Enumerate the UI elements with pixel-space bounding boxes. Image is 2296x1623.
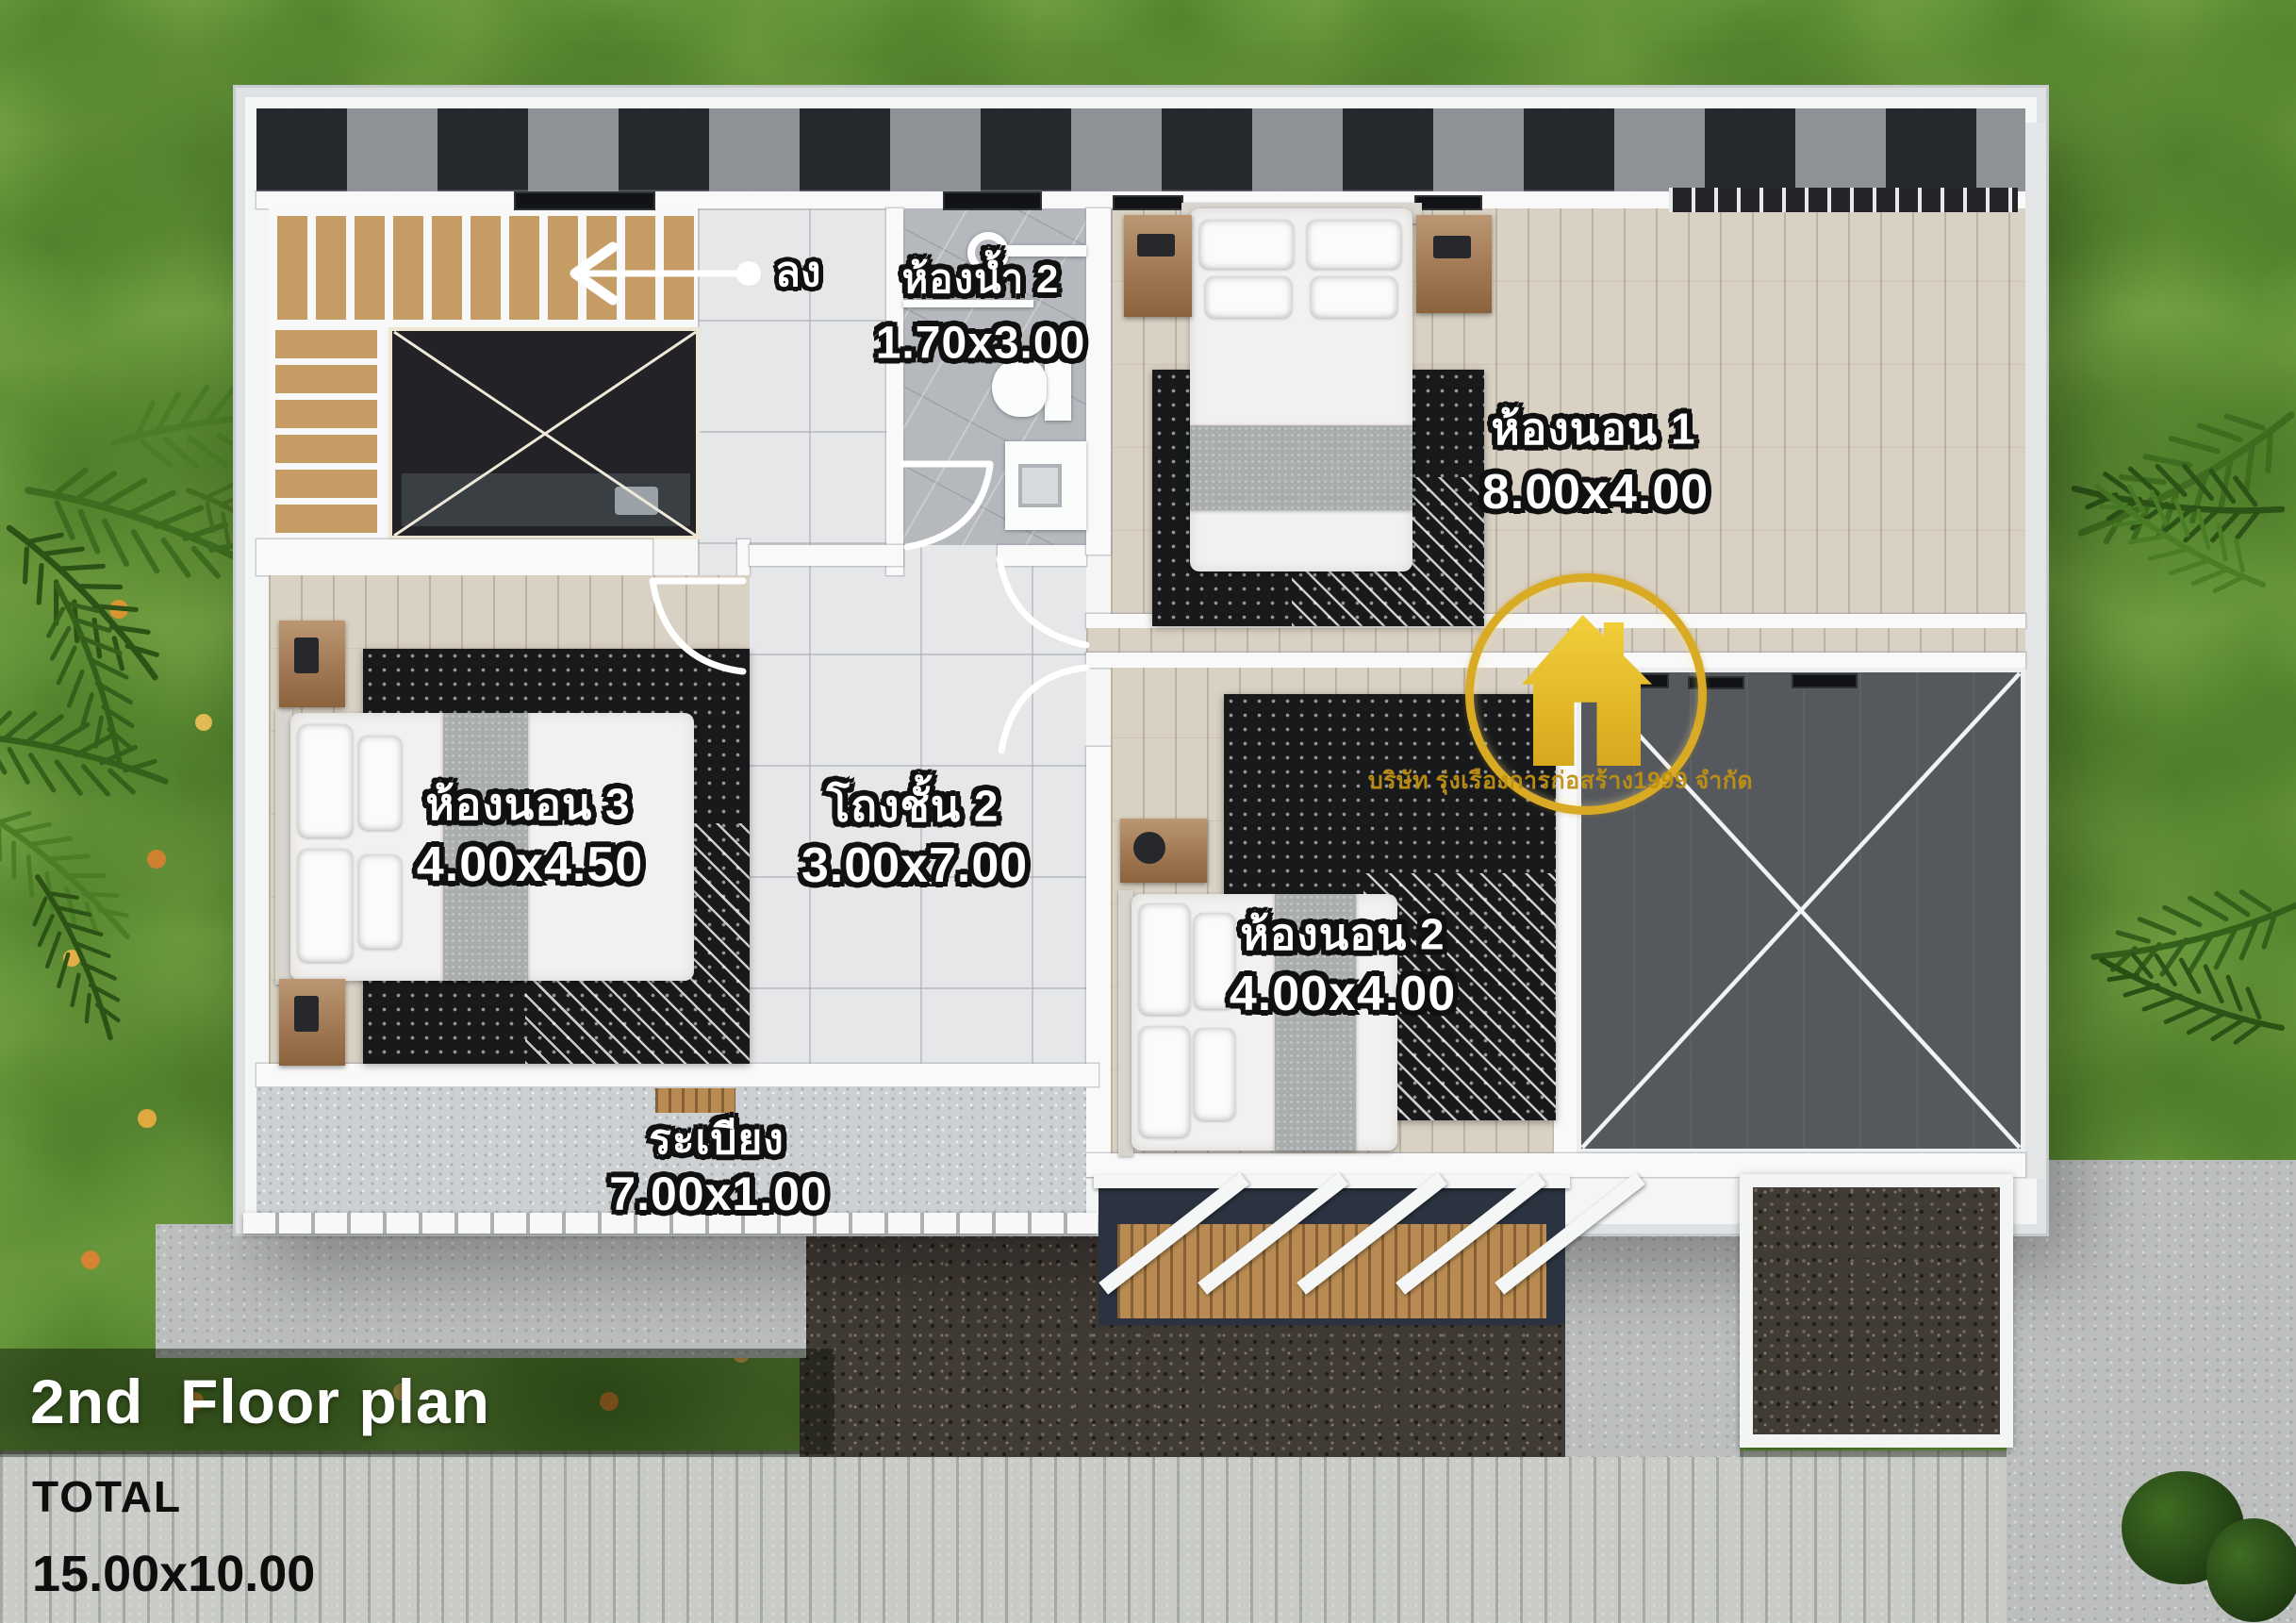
label-balcony-size: 7.00x1.00 — [609, 1167, 827, 1221]
window-bedroom1-left — [1113, 195, 1183, 210]
wall-bedroom3-bottom — [256, 1064, 1098, 1086]
label-hall2-size: 3.00x7.00 — [801, 837, 1028, 894]
label-bedroom2-size: 4.00x4.00 — [1230, 966, 1456, 1022]
lower-roof-extension — [1740, 1174, 2013, 1448]
wall-stairs-bottom — [256, 539, 652, 575]
nightstand — [1416, 215, 1492, 313]
label-bedroom1-name: ห้องนอน 1 — [1491, 395, 1695, 464]
nightstand — [279, 979, 345, 1066]
stairs-top-run — [269, 208, 698, 327]
stairs-left-run — [269, 327, 384, 539]
bush — [2206, 1518, 2296, 1622]
label-bedroom2-name: ห้องนอน 2 — [1240, 901, 1445, 969]
floor-plan-scene: บริษัท รุ่งเรืองการก่อสร้าง1999 จำกัด ห้… — [0, 0, 2296, 1623]
window-bedroom1-right — [1414, 195, 1482, 210]
wood-deck-strip — [0, 1450, 2296, 1623]
total-value: 15.00x10.00 — [32, 1545, 315, 1603]
concrete-strip-mid — [1565, 1205, 1740, 1457]
bedroom1-bed — [1190, 208, 1412, 571]
label-bathroom2-name: ห้องน้ำ 2 — [902, 248, 1060, 310]
kitchen-sink-below — [615, 487, 658, 515]
wall-bathroom-bottom-a — [750, 545, 903, 566]
nightstand — [279, 621, 345, 707]
wall-bathroom-bottom-b — [998, 545, 1086, 566]
sink-basin — [1018, 464, 1062, 507]
wall-hall-right-lower — [1086, 747, 1111, 1177]
nightstand — [1124, 215, 1192, 317]
label-bedroom3-size: 4.00x4.50 — [417, 836, 643, 893]
window-stairs — [514, 191, 655, 210]
label-balcony-name: ระเบียง — [649, 1106, 785, 1172]
wall-stub — [737, 539, 750, 575]
kitchen-void-opening — [388, 327, 700, 539]
window-bathroom — [943, 191, 1042, 210]
wall-bathroom-left — [886, 208, 903, 575]
wall-hall-right-upper — [1086, 208, 1111, 555]
nightstand — [1120, 819, 1207, 883]
company-logo-text: บริษัท รุ่งเรืองการก่อสร้าง1999 จำกัด — [1368, 762, 1753, 800]
top-tile-walkway — [256, 108, 2025, 200]
right-exterior-ledge — [2025, 123, 2046, 1179]
label-bathroom2-size: 1.70x3.00 — [876, 318, 1086, 370]
page-title: 2nd Floor plan — [30, 1366, 490, 1437]
total-label: TOTAL — [32, 1471, 182, 1522]
label-hall2-name: โถงชั้น 2 — [826, 772, 999, 841]
vent-slot — [1792, 673, 1858, 688]
window-louver-right — [1669, 188, 2018, 212]
fallen-leaves-scatter — [0, 0, 11, 11]
walkway-left — [156, 1224, 806, 1358]
label-bedroom3-name: ห้องนอน 3 — [425, 770, 630, 839]
label-bedroom1-size: 8.00x4.00 — [1482, 464, 1709, 521]
label-stairs-down: ลง — [775, 239, 820, 305]
